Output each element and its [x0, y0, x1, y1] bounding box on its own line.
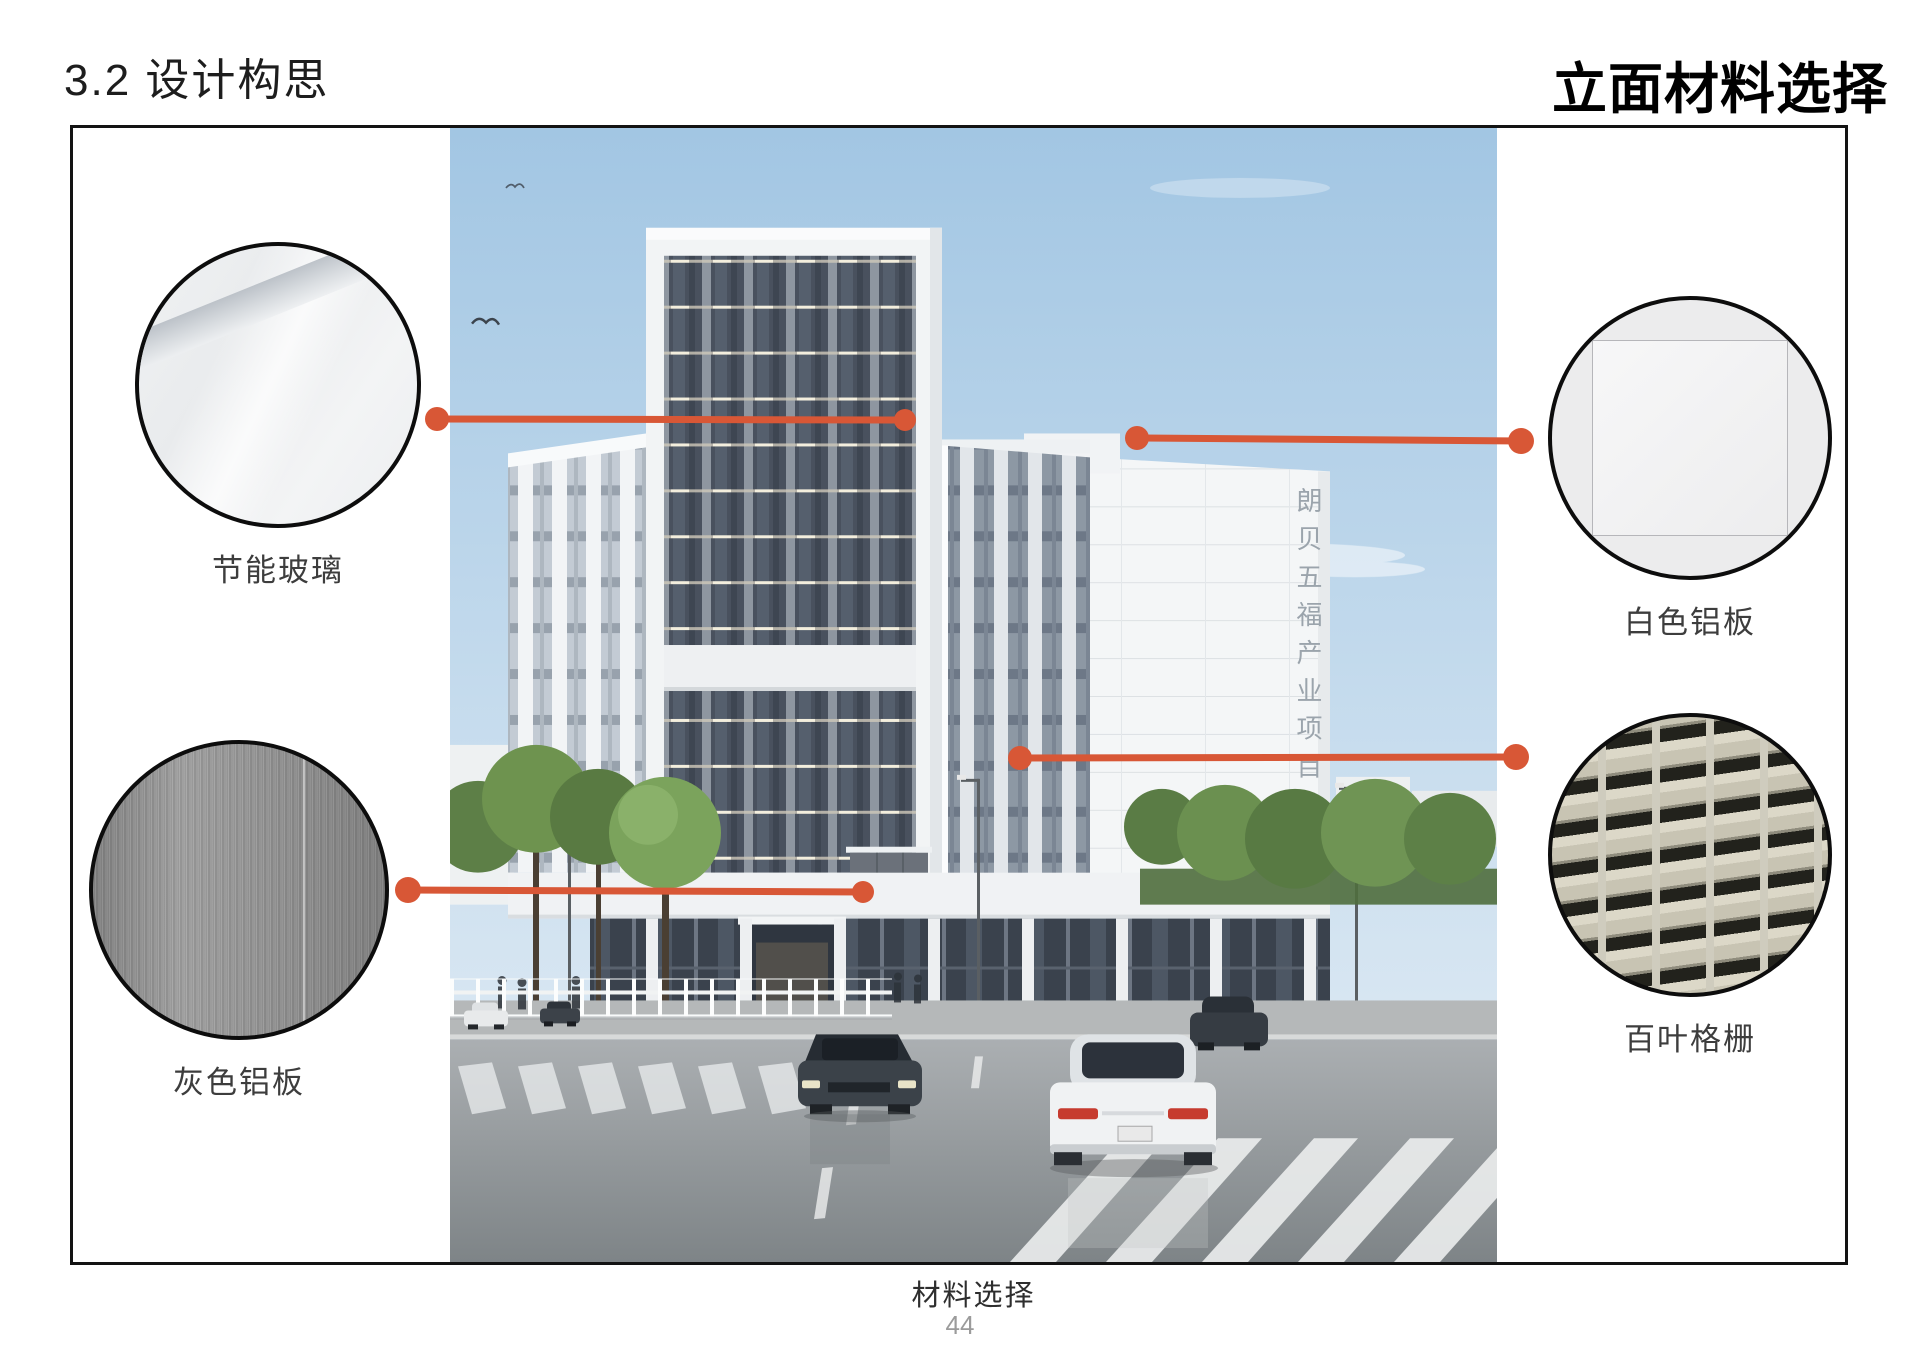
page-title: 立面材料选择	[1552, 44, 1888, 124]
material-sample-white-aluminum: 白色铝板	[1548, 296, 1832, 642]
material-label-gray-aluminum: 灰色铝板	[89, 1057, 389, 1102]
material-photo-white-aluminum-icon	[1548, 296, 1832, 580]
material-sample-louver: 百叶格栅	[1548, 713, 1832, 1059]
section-title: 3.2 设计构思	[64, 44, 329, 108]
material-label-glass: 节能玻璃	[135, 545, 421, 590]
material-sample-glass: 节能玻璃	[135, 242, 421, 590]
guardrail-fence	[450, 979, 892, 1019]
building-rendering-photo: 朗贝五福产业项目	[450, 128, 1497, 1262]
material-photo-louver-icon	[1548, 713, 1832, 997]
slide-page: 3.2 设计构思 立面材料选择	[0, 0, 1920, 1358]
page-number: 44	[0, 1310, 1920, 1341]
road	[450, 1039, 1497, 1262]
material-photo-gray-aluminum-icon	[89, 740, 389, 1040]
building-illustration: 朗贝五福产业项目	[450, 128, 1497, 1262]
material-label-louver: 百叶格栅	[1548, 1014, 1832, 1059]
material-photo-glass-icon	[135, 242, 421, 528]
figure-caption: 材料选择	[450, 1272, 1497, 1314]
building-sign-text: 朗贝五福产业项目	[1293, 487, 1323, 791]
material-label-white-aluminum: 白色铝板	[1548, 597, 1832, 642]
material-sample-gray-aluminum: 灰色铝板	[89, 740, 389, 1102]
